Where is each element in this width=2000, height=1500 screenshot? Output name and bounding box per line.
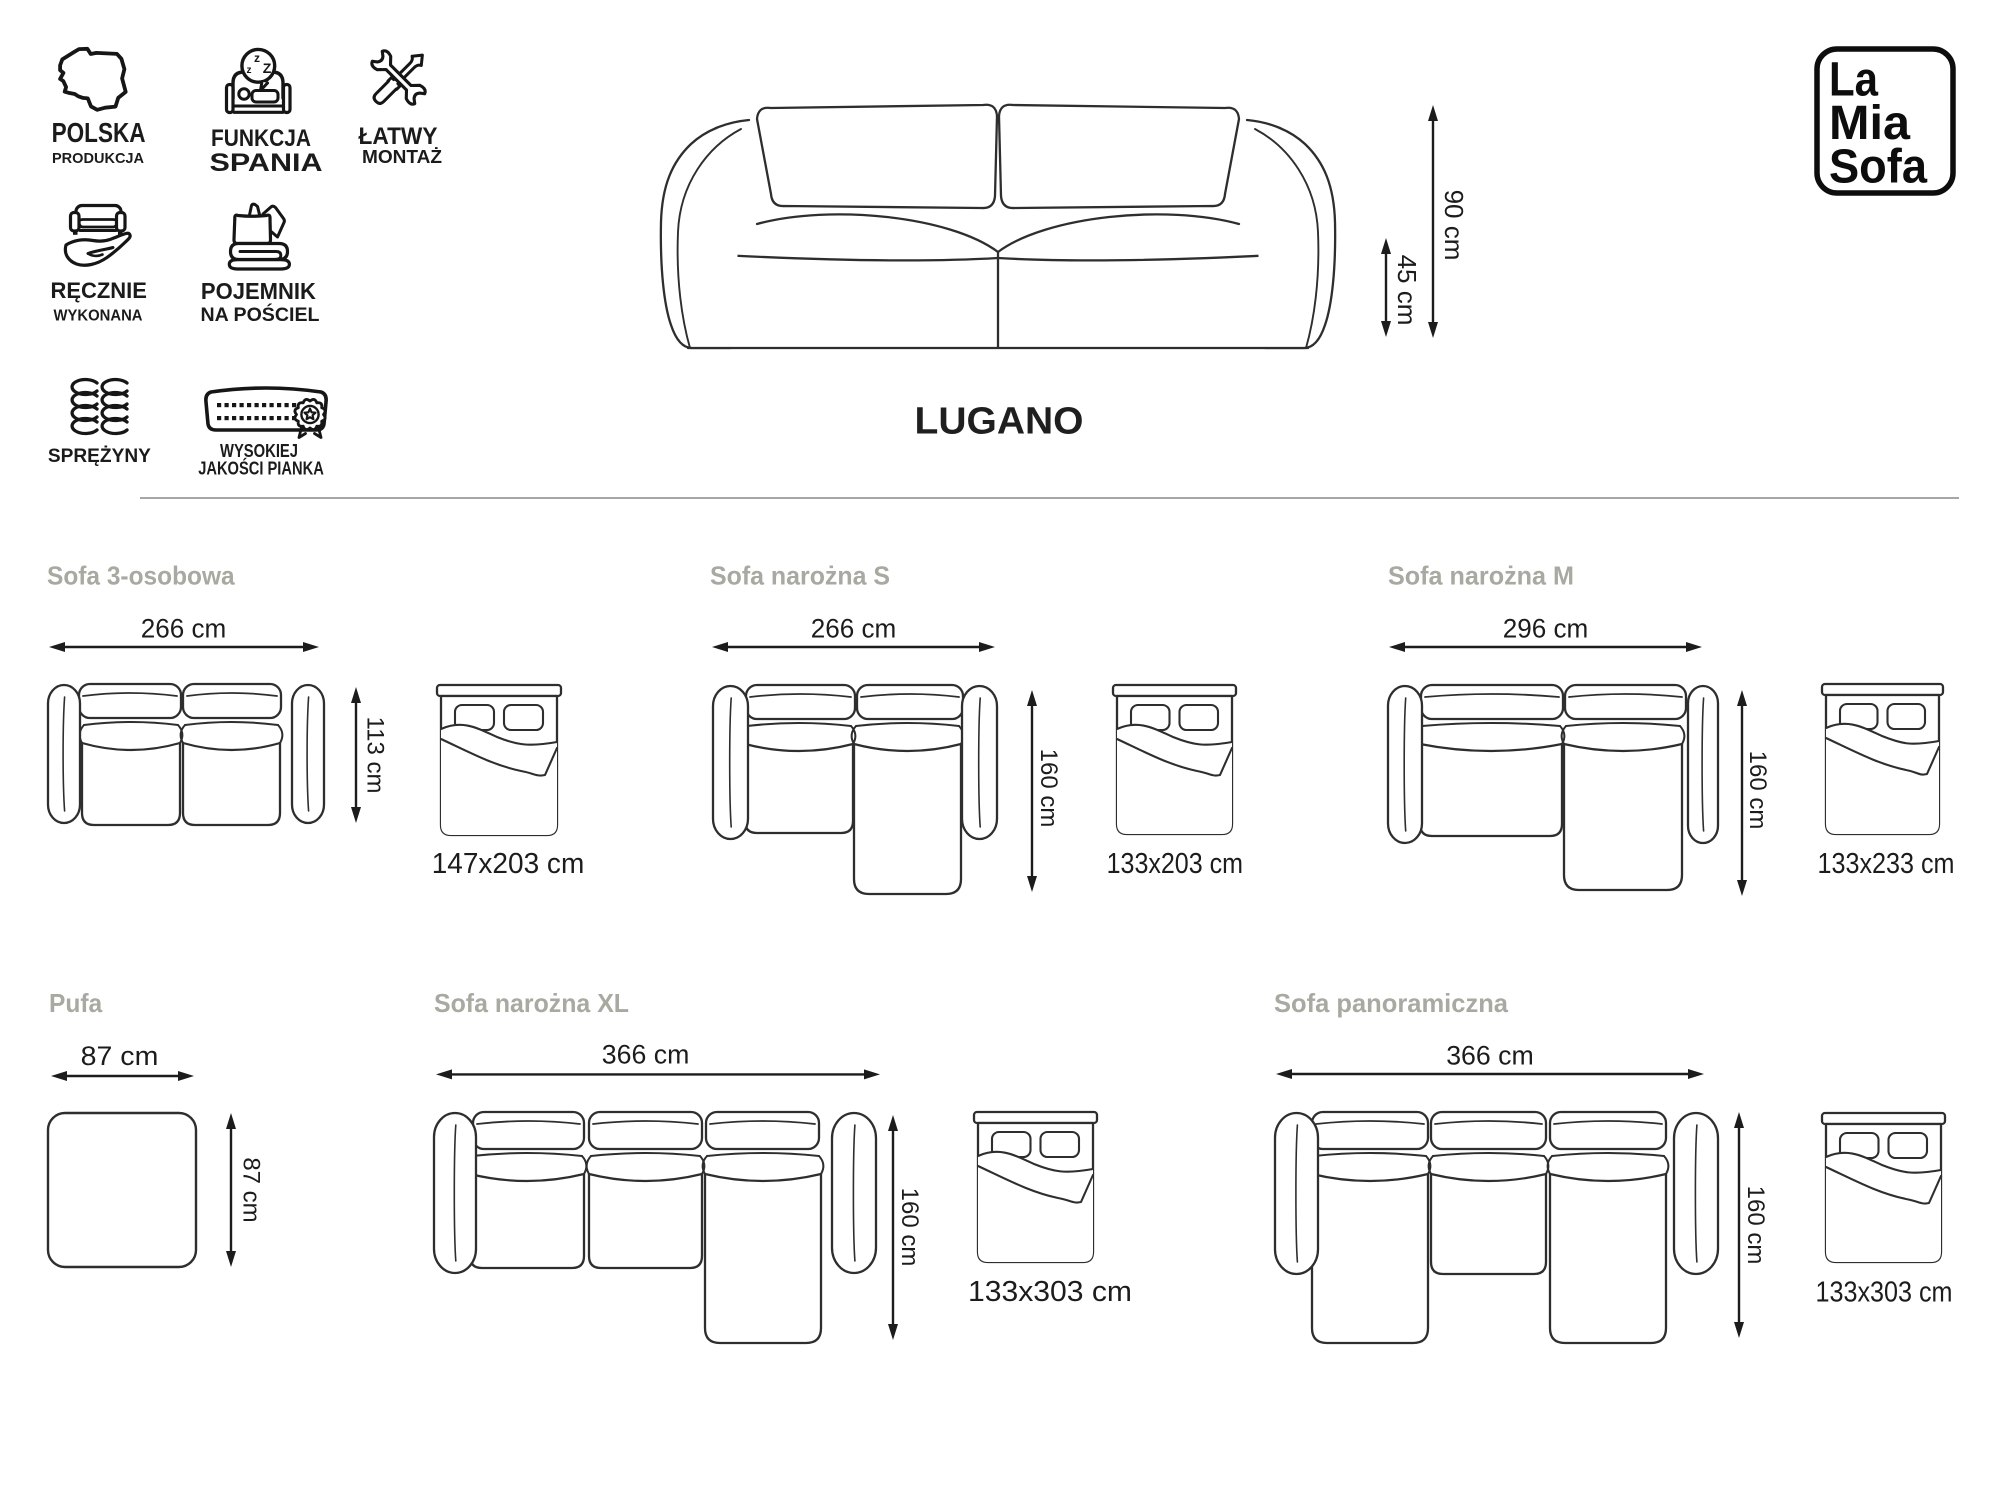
svg-text:RĘCZNIE: RĘCZNIE [50,278,147,303]
svg-text:Z: Z [263,60,272,76]
svg-text:SPRĘŻYNY: SPRĘŻYNY [48,444,151,467]
svg-text:366 cm: 366 cm [1446,1040,1534,1070]
svg-text:266 cm: 266 cm [141,614,227,644]
svg-text:160 cm: 160 cm [896,1188,923,1267]
svg-text:Pufa: Pufa [49,988,103,1018]
svg-text:LUGANO: LUGANO [915,401,1084,443]
svg-text:366 cm: 366 cm [602,1040,690,1070]
svg-text:WYKONANA: WYKONANA [54,308,143,325]
svg-text:160 cm: 160 cm [1035,749,1062,828]
svg-text:133x203 cm: 133x203 cm [1107,848,1243,880]
svg-text:160 cm: 160 cm [1744,751,1771,830]
svg-text:87 cm: 87 cm [238,1157,265,1222]
svg-text:90 cm: 90 cm [1439,190,1469,261]
svg-text:POLSKA: POLSKA [52,117,146,148]
svg-text:133x233 cm: 133x233 cm [1818,848,1955,880]
svg-text:266 cm: 266 cm [811,614,897,644]
svg-text:ŁATWY: ŁATWY [359,123,438,150]
svg-text:147x203 cm: 147x203 cm [432,848,585,880]
svg-text:Sofa narożna M: Sofa narożna M [1388,561,1574,591]
svg-text:133x303 cm: 133x303 cm [968,1276,1132,1308]
svg-text:z: z [247,65,252,76]
svg-text:POJEMNIK: POJEMNIK [201,278,316,304]
svg-text:FUNKCJA: FUNKCJA [211,125,311,152]
svg-text:Sofa narożna S: Sofa narożna S [710,561,890,591]
svg-text:Sofa panoramiczna: Sofa panoramiczna [1274,988,1509,1018]
svg-text:45 cm: 45 cm [1392,255,1422,326]
svg-text:MONTAŻ: MONTAŻ [362,147,442,167]
svg-text:Sofa narożna XL: Sofa narożna XL [434,988,629,1018]
svg-text:133x303 cm: 133x303 cm [1816,1277,1953,1309]
svg-text:Sofa 3-osobowa: Sofa 3-osobowa [47,561,235,591]
svg-text:z: z [254,51,260,65]
svg-text:SPANIA: SPANIA [210,149,323,177]
svg-text:296 cm: 296 cm [1503,614,1589,644]
svg-text:113 cm: 113 cm [362,717,389,794]
svg-text:87 cm: 87 cm [81,1041,159,1071]
svg-text:NA POŚCIEL: NA POŚCIEL [201,302,320,326]
svg-text:Sofa: Sofa [1829,141,1927,194]
svg-text:PRODUKCJA: PRODUKCJA [52,150,144,167]
svg-text:JAKOŚCI PIANKA: JAKOŚCI PIANKA [198,458,324,479]
svg-text:160 cm: 160 cm [1742,1186,1769,1265]
